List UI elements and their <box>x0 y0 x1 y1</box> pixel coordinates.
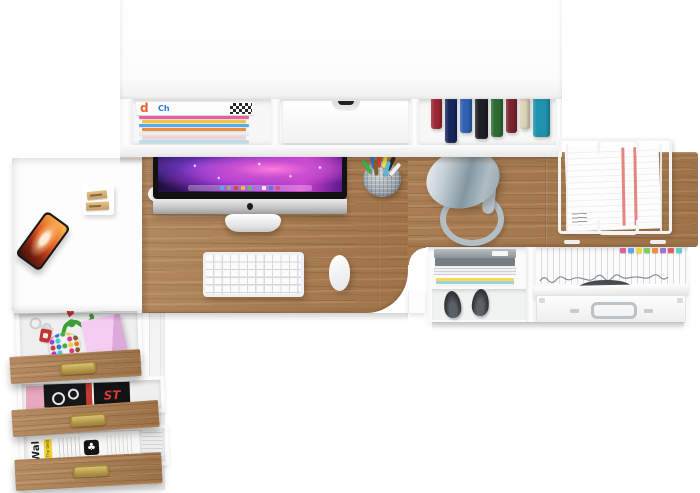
drawer-notch-handle <box>332 101 360 111</box>
briefcase-latch <box>570 309 579 313</box>
magazine-cover: d Ch <box>136 102 254 115</box>
mouse <box>329 255 350 291</box>
hutch-bottom-edge <box>120 145 562 157</box>
wall-hutch: d Ch <box>120 0 562 157</box>
pink-magazine <box>26 386 44 410</box>
shadow <box>432 322 684 329</box>
file-folder-row <box>536 248 686 284</box>
hutch-drawer-front <box>283 101 408 143</box>
under-desk-shelf-unit <box>428 247 688 322</box>
newspaper-highlight-tag: The best <box>44 439 53 459</box>
shelf-divider <box>526 247 536 322</box>
newspaper-logo: ♣ <box>84 440 100 456</box>
tray-handle <box>597 220 639 235</box>
imac-dock <box>188 185 312 191</box>
box-file-stack <box>434 249 516 275</box>
shadow <box>14 313 408 321</box>
briefcase <box>536 295 686 323</box>
lens-graphic <box>68 388 79 399</box>
keyboard <box>203 252 304 297</box>
imac-stand <box>225 214 281 232</box>
wooden-desk-organizer <box>82 185 114 215</box>
drawer-handle <box>72 464 109 478</box>
shoe-compartment <box>432 289 526 320</box>
hutch-compartment-drawer <box>280 99 411 145</box>
index-tabs <box>618 248 682 253</box>
briefcase-handle <box>591 302 637 319</box>
apple-logo-icon <box>247 203 253 210</box>
file-label <box>492 251 508 256</box>
desktop-corner-fillet <box>408 247 426 265</box>
desk-top-view-render: ♥ ST Wal The best ♣ <box>0 0 700 493</box>
hutch-compartments: d Ch <box>120 99 562 145</box>
keyboard-keys <box>206 255 301 294</box>
wire-paper-tray <box>556 130 674 244</box>
hutch-compartment-magazines: d Ch <box>133 99 271 145</box>
lens-graphic <box>52 392 65 405</box>
drawer-handle <box>59 361 96 375</box>
desk-side-panel <box>408 290 425 313</box>
paper-stack <box>434 266 516 275</box>
tray-frame <box>558 138 672 234</box>
briefcase-latch <box>644 309 653 313</box>
shadow <box>142 152 150 312</box>
hutch-compartment-books <box>419 99 556 145</box>
magazine-stack: d Ch <box>136 102 256 143</box>
tray-handle <box>597 139 639 154</box>
hutch-top-panel <box>120 0 562 99</box>
imac-chin <box>153 199 347 214</box>
checker-pattern <box>230 103 252 114</box>
imac-display <box>153 157 347 199</box>
drawer-handle <box>69 413 106 427</box>
book-row <box>419 99 556 145</box>
desktop-board-seam <box>545 152 547 247</box>
imac-screen-wallpaper <box>158 157 342 192</box>
shoe <box>471 288 490 316</box>
shoe <box>443 290 462 318</box>
magazine-pile <box>436 275 514 287</box>
